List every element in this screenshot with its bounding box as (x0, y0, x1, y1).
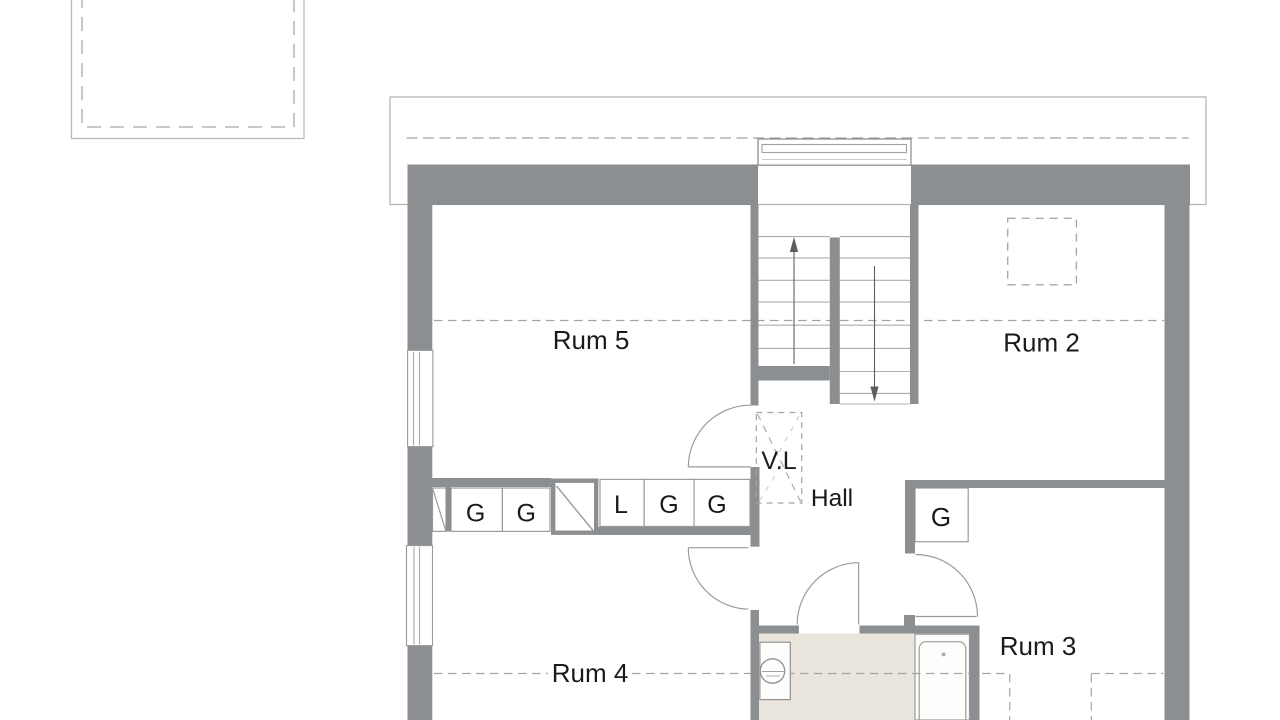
svg-text:Rum 2: Rum 2 (1003, 328, 1080, 358)
svg-text:V.L: V.L (761, 447, 796, 475)
svg-text:Rum 4: Rum 4 (552, 658, 629, 688)
svg-text:Rum 3: Rum 3 (1000, 631, 1077, 661)
svg-text:G: G (466, 500, 485, 528)
svg-text:G: G (707, 491, 726, 519)
svg-text:G: G (931, 502, 951, 532)
svg-text:G: G (659, 491, 678, 519)
svg-text:Rum 5: Rum 5 (553, 325, 630, 355)
svg-text:Hall: Hall (811, 485, 853, 512)
svg-text:L: L (614, 491, 628, 519)
svg-text:G: G (516, 500, 535, 528)
